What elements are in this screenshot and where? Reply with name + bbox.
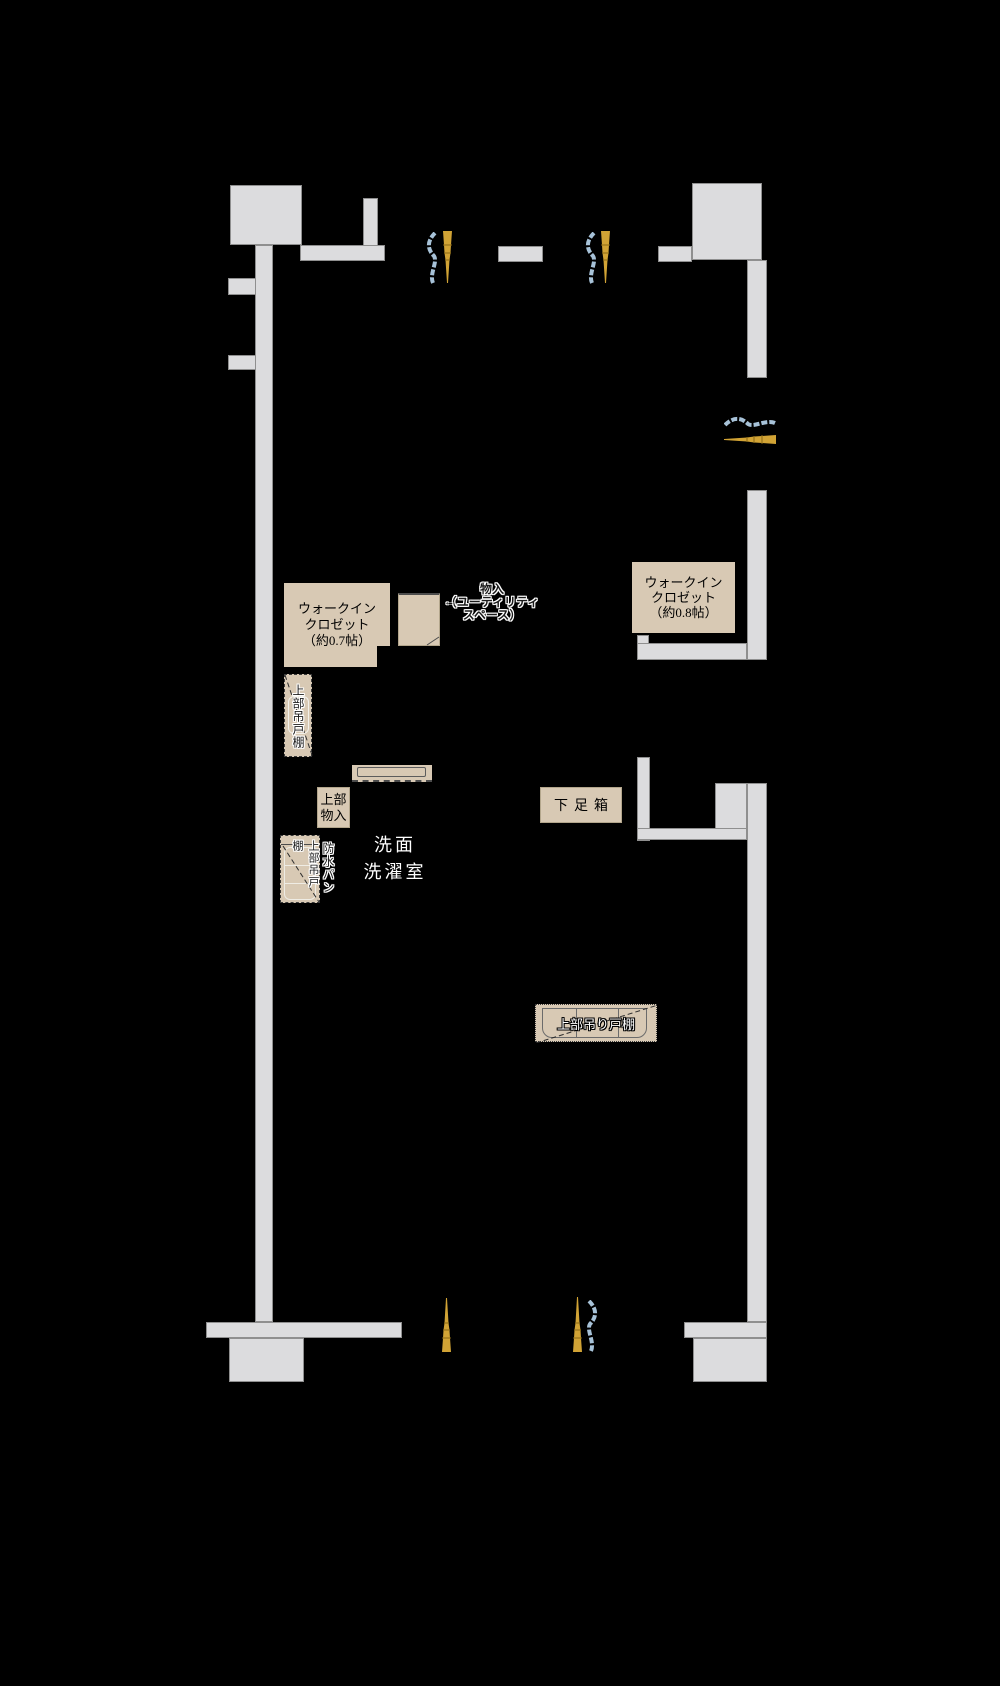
closet-label: ウォークイン bbox=[298, 601, 376, 617]
wall-block-top-left bbox=[230, 185, 302, 245]
kitchen-upper-cabinet: 上部吊り戸棚 bbox=[535, 1004, 657, 1042]
tassel-icon bbox=[724, 433, 777, 446]
washroom-label: 洗面 洗濯室 bbox=[335, 833, 455, 885]
wall-block-top-right bbox=[692, 183, 762, 260]
floor-plan: ウォークイン クロゼット （約0.7帖） ウォークイン クロゼット （約0.8帖… bbox=[0, 0, 1000, 1686]
closet-label: ウォークイン bbox=[644, 575, 722, 590]
window-bottom-1 bbox=[440, 1298, 453, 1352]
upper-cabinet-1-label: 上部吊戸棚 bbox=[290, 684, 307, 752]
door-tick bbox=[399, 595, 441, 648]
upper-storage: 上部 物入 bbox=[317, 787, 350, 828]
curtain-icon bbox=[585, 1300, 598, 1352]
curtain-icon bbox=[585, 232, 598, 284]
wall-bottom-block-right bbox=[693, 1338, 767, 1382]
wall-bottom-block-left bbox=[229, 1338, 304, 1382]
wall-right-lower bbox=[747, 783, 767, 1322]
closet-label: クロゼット bbox=[304, 617, 369, 633]
counter-shelf bbox=[352, 765, 432, 782]
wall-top-riser bbox=[363, 198, 378, 246]
tassel-icon bbox=[599, 231, 612, 283]
tassel-icon bbox=[571, 1297, 584, 1352]
window-top-1 bbox=[426, 231, 454, 285]
shoe-box: 下足箱 bbox=[540, 787, 622, 823]
leader-arrow: ← bbox=[444, 596, 455, 608]
pan-upper-cabinet-label: 上部吊戸棚 bbox=[289, 840, 321, 898]
closet-label: クロゼット bbox=[651, 590, 716, 605]
wall-left-tab-2 bbox=[228, 355, 256, 370]
wall-genkan-block bbox=[715, 783, 747, 829]
wall-top-arm-right bbox=[658, 246, 692, 262]
storage-unit bbox=[398, 593, 440, 646]
window-bottom-2 bbox=[571, 1297, 599, 1353]
wall-bottom-left bbox=[206, 1322, 402, 1338]
wall-right-arm bbox=[637, 643, 747, 660]
curtain-icon bbox=[426, 232, 439, 284]
tassel-icon bbox=[440, 1298, 453, 1352]
window-right bbox=[724, 416, 778, 448]
wall-top-band-left bbox=[300, 245, 385, 261]
walk-in-closet-0.8: ウォークイン クロゼット （約0.8帖） bbox=[632, 562, 735, 633]
window-top-2 bbox=[585, 231, 613, 285]
wall-left-tab-1 bbox=[228, 278, 256, 295]
curtain-icon bbox=[724, 416, 777, 430]
counter-outline bbox=[357, 767, 426, 777]
closet-label: （約0.7帖） bbox=[303, 633, 371, 649]
closet-label: （約0.8帖） bbox=[649, 605, 717, 620]
wall-bottom-right bbox=[684, 1322, 767, 1338]
wall-right-mid bbox=[747, 490, 767, 660]
wall-left bbox=[255, 245, 273, 1322]
wall-genkan-strip bbox=[637, 828, 747, 840]
wic07-corner-notch bbox=[377, 646, 390, 667]
tassel-icon bbox=[441, 231, 454, 283]
wall-top-stub-middle bbox=[498, 246, 543, 262]
wall-right-upper bbox=[747, 260, 767, 378]
kitchen-upper-cabinet-label: 上部吊り戸棚 bbox=[536, 1014, 656, 1033]
walk-in-closet-0.7: ウォークイン クロゼット （約0.7帖） bbox=[284, 583, 390, 667]
